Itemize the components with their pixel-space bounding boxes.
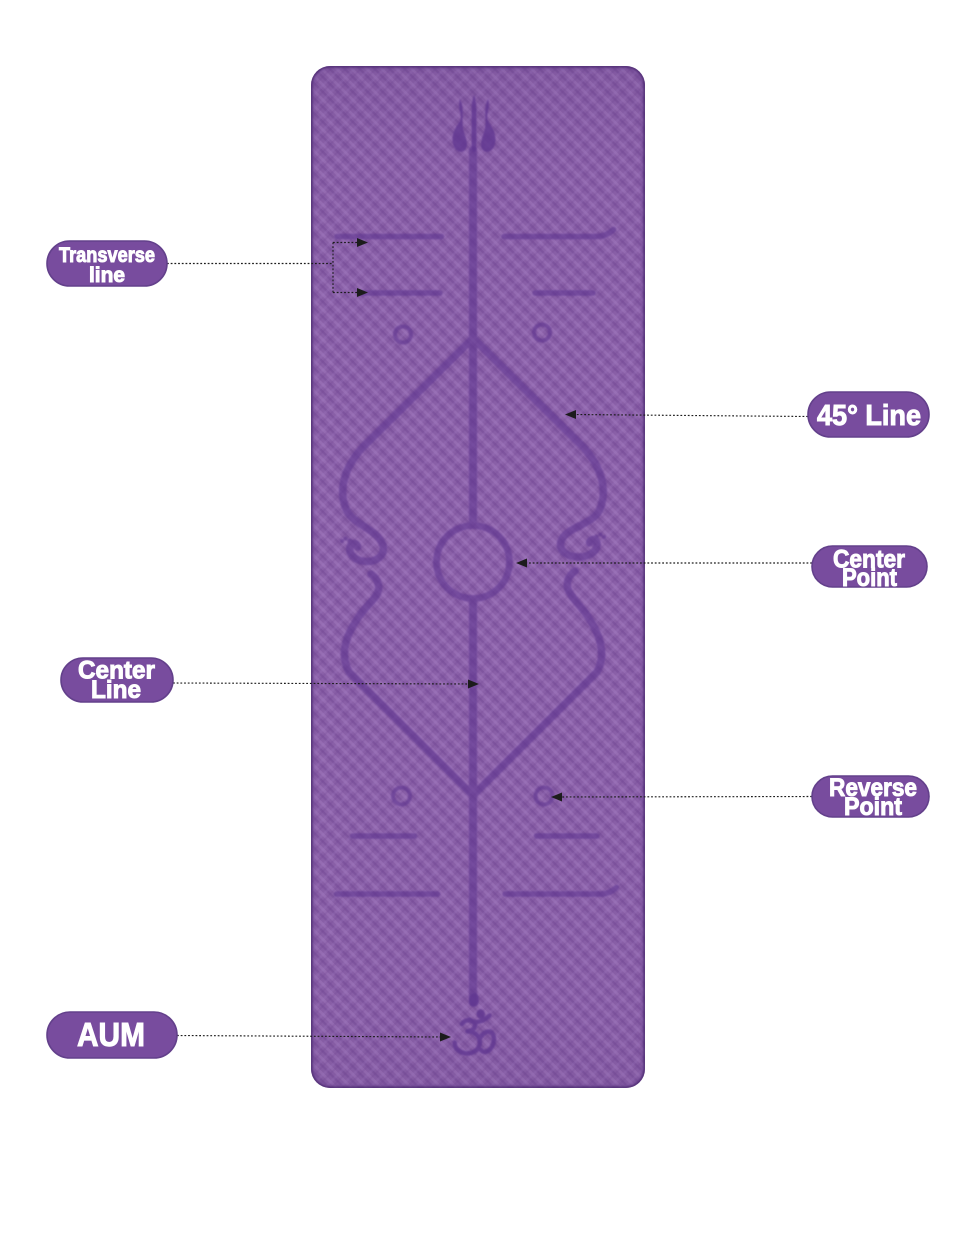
- svg-text:Point: Point: [842, 564, 898, 592]
- svg-text:Line: Line: [91, 676, 141, 704]
- svg-text:line: line: [89, 263, 125, 287]
- svg-text:45° Line: 45° Line: [817, 400, 921, 432]
- svg-text:Point: Point: [844, 793, 903, 821]
- svg-text:AUM: AUM: [77, 1016, 145, 1053]
